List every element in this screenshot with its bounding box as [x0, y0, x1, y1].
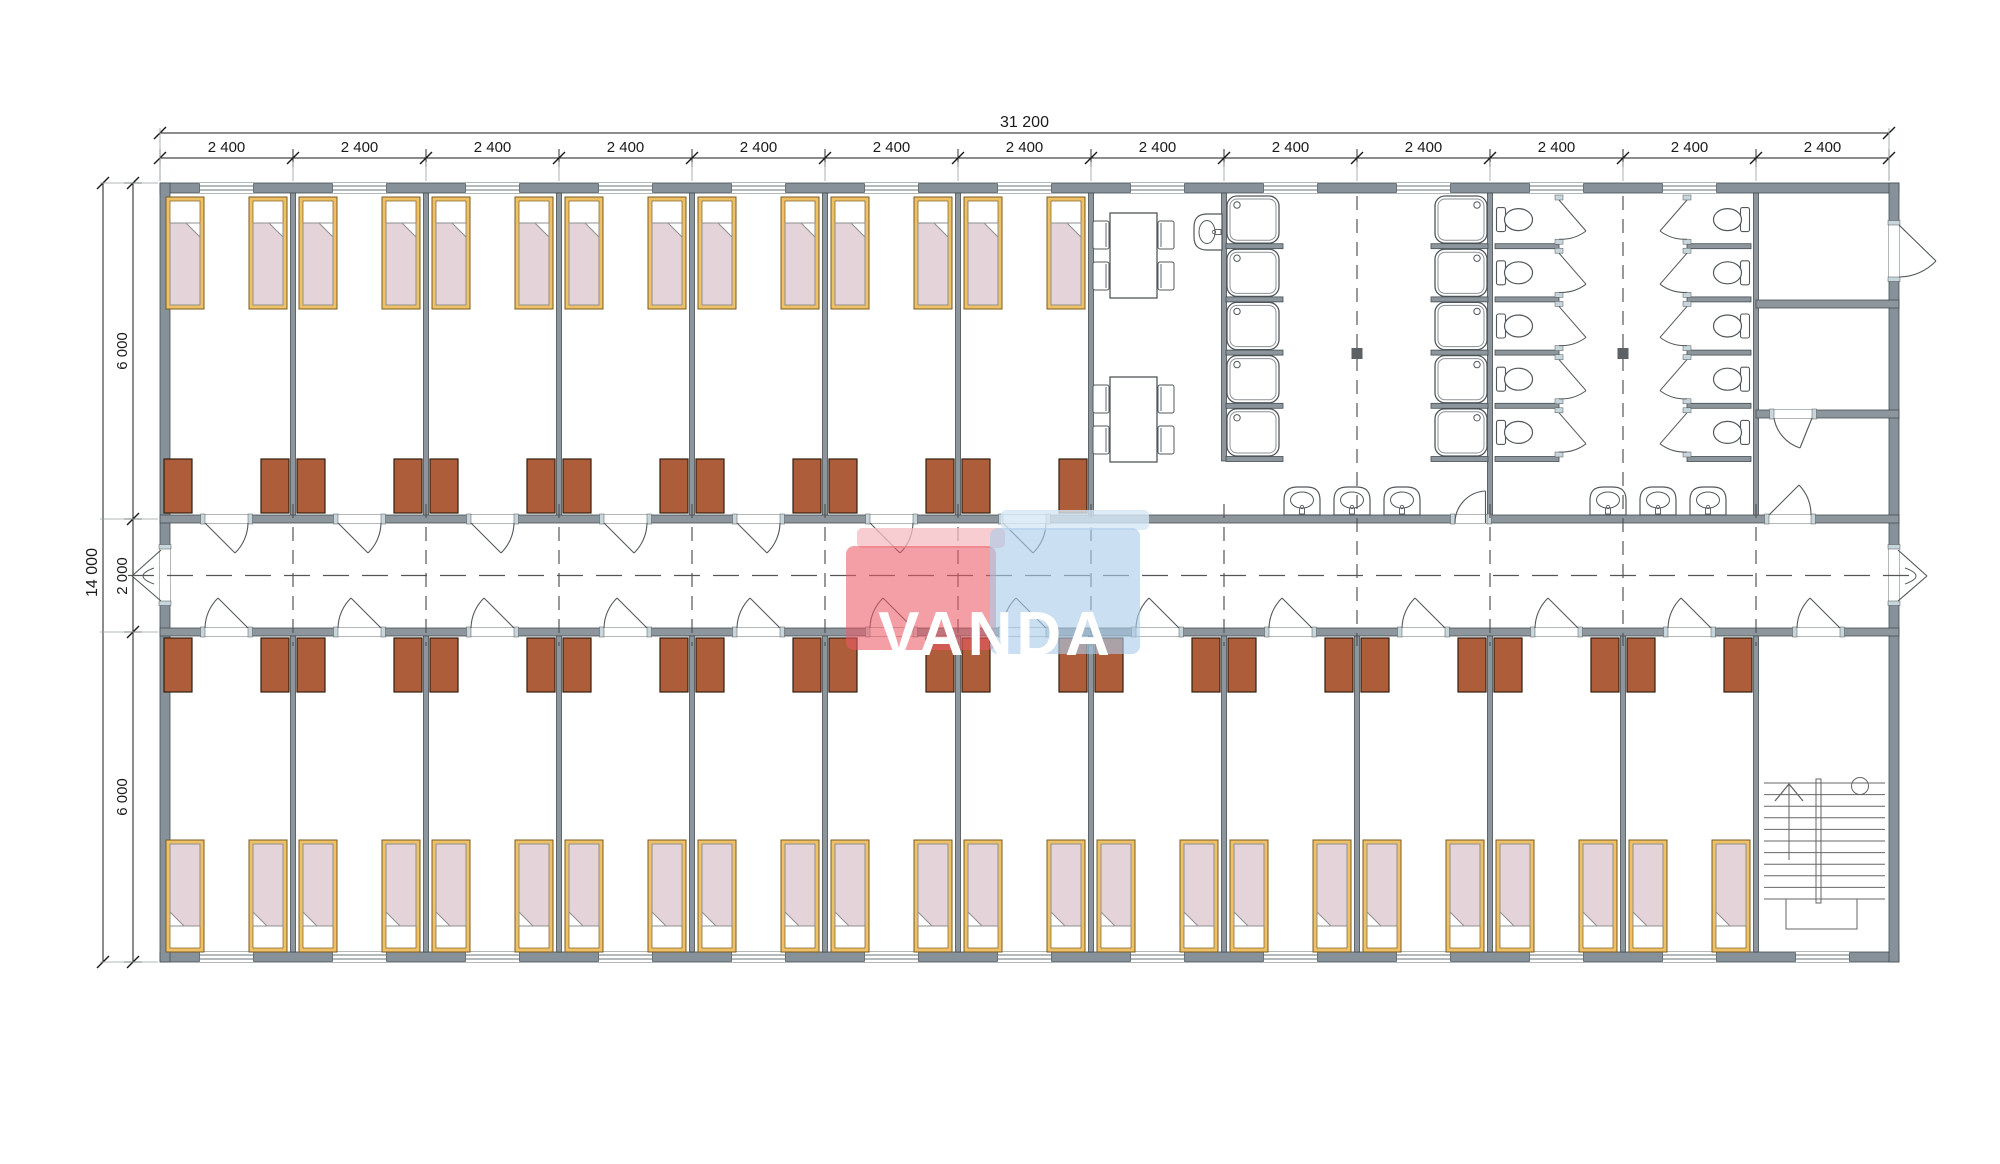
door-swing-icon — [600, 598, 652, 637]
door-arc — [1660, 391, 1687, 399]
dim-label-bay: 2 400 — [1006, 139, 1044, 156]
door-jamb — [600, 514, 605, 524]
partition-wall-bottom — [956, 636, 961, 952]
door-jamb — [1451, 514, 1456, 524]
door-jamb — [1683, 408, 1691, 413]
door-jamb — [1683, 195, 1691, 200]
bed-symbol — [1363, 840, 1401, 952]
door-jamb — [1664, 627, 1669, 637]
door-leaf — [617, 598, 647, 628]
wardrobe-symbol — [164, 638, 192, 692]
bedroom-bottom-5 — [696, 638, 821, 952]
partition-wall-bottom — [1488, 636, 1493, 952]
door-leaf — [484, 598, 514, 628]
wardrobe-symbol — [394, 638, 422, 692]
wardrobe-symbol — [1325, 638, 1353, 692]
wardrobe-symbol — [1494, 638, 1522, 692]
bedroom-bottom-9 — [1228, 638, 1353, 952]
door-leaf — [1899, 225, 1936, 261]
door-jamb — [514, 514, 519, 524]
door-arc — [1559, 337, 1586, 345]
door-arc — [737, 598, 750, 628]
bed-symbol — [1230, 840, 1268, 952]
shower-partition — [1431, 244, 1488, 249]
door-arc — [1774, 418, 1800, 448]
bed-symbol — [1712, 840, 1750, 952]
dim-label-bay: 2 400 — [607, 139, 645, 156]
door-leaf — [1149, 598, 1179, 628]
bedroom-bottom-10 — [1361, 638, 1486, 952]
door-swing-icon — [733, 514, 785, 553]
door-jamb — [1555, 399, 1563, 404]
bed-symbol — [648, 197, 686, 309]
dimensions-left: 14 0006 0002 0006 000 — [84, 177, 158, 968]
bed-symbol — [1047, 197, 1085, 309]
bed-symbol — [382, 840, 420, 952]
door-arc — [1660, 284, 1687, 292]
washroom-wall — [1754, 193, 1759, 515]
toilet-icon — [1714, 367, 1750, 391]
chair-icon — [1158, 385, 1174, 413]
door-arc — [1660, 337, 1687, 345]
door-jamb — [1555, 292, 1563, 297]
partition-wall-bottom — [424, 636, 429, 952]
door-leaf — [1415, 598, 1445, 628]
door-swing-icon — [201, 514, 253, 553]
door-jamb — [467, 514, 472, 524]
door-swing-icon — [1555, 355, 1586, 404]
window-icon — [732, 952, 786, 962]
bed-symbol — [1496, 840, 1534, 952]
shower-block-a — [1226, 196, 1283, 462]
door-arc — [1535, 598, 1548, 628]
window-icon — [1264, 183, 1318, 193]
door-leaf — [1800, 418, 1812, 448]
door-arc — [1559, 444, 1586, 452]
bedroom-top-7 — [962, 197, 1087, 513]
dim-label-left-seg: 6 000 — [114, 778, 131, 816]
wardrobe-symbol — [563, 459, 591, 513]
door-swing-icon — [600, 514, 652, 553]
door-jamb — [1555, 301, 1563, 306]
basin-icon — [1194, 214, 1222, 250]
dim-label-bay: 2 400 — [474, 139, 512, 156]
wardrobe-symbol — [1458, 638, 1486, 692]
door-jamb — [780, 627, 785, 637]
dim-label-bay: 2 400 — [1139, 139, 1177, 156]
shower-partition — [1226, 457, 1283, 462]
door-arc — [1402, 598, 1415, 628]
dim-label-bay: 2 400 — [341, 139, 379, 156]
door-jamb — [1555, 408, 1563, 413]
window-icon — [865, 952, 919, 962]
bedroom-top-3 — [430, 197, 555, 513]
dim-label-bay: 2 400 — [740, 139, 778, 156]
chair-icon — [1093, 262, 1109, 290]
door-jamb — [1683, 452, 1691, 457]
door-jamb — [248, 514, 253, 524]
door-jamb — [913, 514, 918, 524]
wardrobe-symbol — [430, 638, 458, 692]
dim-label-left-seg: 6 000 — [114, 332, 131, 370]
stall-partition — [1687, 457, 1751, 462]
stall-partition — [1687, 403, 1751, 408]
bed-symbol — [432, 840, 470, 952]
wardrobe-symbol — [696, 638, 724, 692]
door-jamb — [1683, 301, 1691, 306]
window-icon — [998, 183, 1052, 193]
partition-wall-bottom — [1621, 636, 1626, 952]
door-leaf — [1559, 413, 1586, 444]
door-jamb — [381, 514, 386, 524]
bed-symbol — [1097, 840, 1135, 952]
partition-wall-top — [823, 193, 828, 515]
door-jamb — [1812, 409, 1817, 419]
door-leaf — [471, 523, 501, 553]
bedroom-bottom-2 — [297, 638, 422, 952]
dim-label-bay: 2 400 — [873, 139, 911, 156]
partition-wall-bottom — [1754, 636, 1759, 952]
stall-partition — [1495, 297, 1559, 302]
bed-symbol — [565, 197, 603, 309]
door-arc — [1797, 598, 1810, 628]
door-jamb — [1840, 627, 1845, 637]
toilet-icon — [1714, 208, 1750, 232]
stall-partition — [1687, 350, 1751, 355]
room-wall — [1756, 300, 1899, 308]
bedroom-bottom-4 — [563, 638, 688, 952]
door-swing-icon — [1555, 301, 1586, 350]
shower-tray-icon — [1227, 249, 1279, 296]
window-icon — [200, 952, 254, 962]
basin-icon — [1690, 487, 1726, 515]
door-jamb — [1683, 239, 1691, 244]
stall-partition — [1687, 297, 1751, 302]
door-jamb — [1793, 627, 1798, 637]
window-icon — [1131, 952, 1185, 962]
bed-symbol — [166, 840, 204, 952]
shower-partition — [1226, 297, 1283, 302]
door-jamb — [201, 627, 206, 637]
shower-tray-icon — [1227, 302, 1279, 349]
door-jamb — [1555, 346, 1563, 351]
toilet-icon — [1714, 420, 1750, 444]
bedroom-top-4 — [563, 197, 688, 513]
partition-wall-top — [690, 193, 695, 515]
shower-tray-icon — [1227, 196, 1279, 243]
toilet-icon — [1714, 314, 1750, 338]
wardrobe-symbol — [793, 459, 821, 513]
wardrobe-symbol — [297, 638, 325, 692]
dim-label-bay: 2 400 — [208, 139, 246, 156]
bed-symbol — [1629, 840, 1667, 952]
bed-symbol — [831, 197, 869, 309]
bed-symbol — [698, 840, 736, 952]
window-icon — [1663, 952, 1717, 962]
stall-partition — [1495, 403, 1559, 408]
column-marker — [1618, 348, 1629, 359]
toilet-icon — [1714, 261, 1750, 285]
door-leaf — [1559, 360, 1586, 391]
bed-symbol — [1313, 840, 1351, 952]
door-jamb — [1888, 221, 1900, 226]
door-swing-icon — [1660, 195, 1691, 244]
bedroom-bottom-7 — [962, 638, 1087, 952]
door-jamb — [1765, 514, 1770, 524]
door-leaf — [750, 598, 780, 628]
wardrobe-symbol — [1361, 638, 1389, 692]
window-icon — [865, 183, 919, 193]
door-jamb — [1555, 239, 1563, 244]
partition-wall-bottom — [291, 636, 296, 952]
door-arc — [1559, 284, 1586, 292]
wardrobe-symbol — [1627, 638, 1655, 692]
door-arc — [1899, 261, 1936, 277]
door-arc — [767, 523, 780, 553]
partition-wall-top — [424, 193, 429, 515]
door-swing-icon — [1555, 248, 1586, 297]
toilet-icon — [1497, 208, 1533, 232]
window-icon — [1530, 183, 1584, 193]
wardrobe-symbol — [261, 638, 289, 692]
wardrobe-symbol — [297, 459, 325, 513]
door-swing-icon — [201, 598, 253, 637]
bed-symbol — [964, 840, 1002, 952]
door-swing-icon — [1770, 409, 1817, 448]
door-leaf — [132, 550, 161, 576]
door-jamb — [1683, 292, 1691, 297]
door-jamb — [600, 627, 605, 637]
door-jamb — [159, 601, 171, 606]
shower-tray-icon — [1435, 249, 1487, 296]
door-leaf — [737, 523, 767, 553]
toilet-icon — [1497, 314, 1533, 338]
shower-tray-icon — [1435, 196, 1487, 243]
door-swing-icon — [1660, 248, 1691, 297]
chair-icon — [1158, 221, 1174, 249]
wardrobe-symbol — [394, 459, 422, 513]
floor-plan-page: 31 2002 4002 4002 4002 4002 4002 4002 40… — [0, 0, 2000, 1164]
toilet-icon — [1497, 420, 1533, 444]
stall-partition — [1687, 244, 1751, 249]
door-leaf — [1681, 598, 1711, 628]
table-icon — [1110, 377, 1157, 462]
toilet-block-b — [1660, 195, 1751, 462]
toilet-icon — [1497, 367, 1533, 391]
wardrobe-symbol — [527, 638, 555, 692]
wardrobe-symbol — [1724, 638, 1752, 692]
door-leaf — [1660, 413, 1687, 444]
door-swing-icon — [1265, 598, 1317, 637]
door-jamb — [467, 627, 472, 637]
wardrobe-symbol — [261, 459, 289, 513]
bed-symbol — [1446, 840, 1484, 952]
basin-icon — [1284, 487, 1320, 515]
dim-label-total: 31 200 — [1000, 114, 1049, 131]
shower-partition — [1226, 403, 1283, 408]
door-arc — [604, 598, 617, 628]
door-leaf — [604, 523, 634, 553]
shower-tray-icon — [1435, 356, 1487, 403]
logo-blue-top — [1001, 510, 1149, 530]
door-arc — [1799, 485, 1811, 515]
wardrobe-symbol — [926, 459, 954, 513]
wardrobe-symbol — [164, 459, 192, 513]
bedroom-bottom-11 — [1494, 638, 1619, 952]
bed-symbol — [1047, 840, 1085, 952]
wardrobe-symbol — [660, 638, 688, 692]
chair-icon — [1093, 385, 1109, 413]
bed-symbol — [432, 197, 470, 309]
door-leaf — [1548, 598, 1578, 628]
door-arc — [338, 598, 351, 628]
door-jamb — [1683, 399, 1691, 404]
dim-label-bay: 2 400 — [1804, 139, 1842, 156]
table-icon — [1110, 213, 1157, 298]
exterior-door-icon — [1888, 221, 1936, 282]
window-icon — [333, 183, 387, 193]
door-jamb — [866, 514, 871, 524]
window-icon — [1796, 952, 1850, 962]
door-swing-icon — [334, 514, 386, 553]
wardrobe-symbol — [430, 459, 458, 513]
door-leaf — [1898, 576, 1927, 601]
door-swing-icon — [467, 598, 519, 637]
door-arc — [634, 523, 647, 553]
wardrobe-symbol — [527, 459, 555, 513]
dimensions-top: 31 2002 4002 4002 4002 4002 4002 4002 40… — [154, 114, 1895, 181]
door-jamb — [514, 627, 519, 637]
stall-partition — [1495, 350, 1559, 355]
partition-wall-bottom — [1355, 636, 1360, 952]
dim-label-bay: 2 400 — [1671, 139, 1709, 156]
door-arc — [1559, 391, 1586, 399]
bedroom-bottom-1 — [164, 638, 289, 952]
bedroom-top-6 — [829, 197, 954, 513]
shower-block-b — [1431, 196, 1488, 462]
bed-symbol — [648, 840, 686, 952]
stair-marker — [1852, 778, 1869, 795]
door-jamb — [334, 514, 339, 524]
bed-symbol — [964, 197, 1002, 309]
door-jamb — [1555, 452, 1563, 457]
door-jamb — [1770, 409, 1775, 419]
wardrobe-symbol — [696, 459, 724, 513]
partition-wall-top — [956, 193, 961, 515]
door-jamb — [381, 627, 386, 637]
door-jamb — [780, 514, 785, 524]
door-arc — [501, 523, 514, 553]
wardrobe-symbol — [793, 638, 821, 692]
window-icon — [998, 952, 1052, 962]
shower-partition — [1226, 244, 1283, 249]
window-icon — [1663, 183, 1717, 193]
stall-partition — [1495, 457, 1559, 462]
column-marker — [1352, 348, 1363, 359]
wardrobe-symbol — [829, 459, 857, 513]
door-jamb — [1555, 355, 1563, 360]
door-swing-icon — [1398, 598, 1450, 637]
bed-symbol — [166, 197, 204, 309]
partition-wall-top — [291, 193, 296, 515]
partition-wall-bottom — [1222, 636, 1227, 952]
door-leaf — [1769, 485, 1799, 515]
door-jamb — [1445, 627, 1450, 637]
window-icon — [1397, 183, 1451, 193]
door-leaf — [338, 523, 368, 553]
door-leaf — [351, 598, 381, 628]
window-icon — [1131, 183, 1185, 193]
door-swing-icon — [1451, 491, 1492, 524]
door-jamb — [647, 514, 652, 524]
door-arc — [1660, 231, 1687, 239]
door-jamb — [1711, 627, 1716, 637]
bedroom-top-2 — [297, 197, 422, 513]
shower-partition — [1431, 297, 1488, 302]
door-jamb — [1683, 346, 1691, 351]
bedroom-bottom-3 — [430, 638, 555, 952]
bed-symbol — [565, 840, 603, 952]
door-swing-icon — [1765, 485, 1816, 524]
bed-symbol — [1180, 840, 1218, 952]
door-jamb — [1487, 514, 1492, 524]
door-jamb — [1888, 277, 1900, 282]
window-icon — [333, 952, 387, 962]
door-arc — [1269, 598, 1282, 628]
bed-symbol — [249, 840, 287, 952]
bedroom-bottom-8 — [1095, 638, 1220, 952]
door-leaf — [1810, 598, 1840, 628]
window-icon — [1530, 952, 1584, 962]
shower-partition — [1431, 403, 1488, 408]
wardrobe-symbol — [1228, 638, 1256, 692]
window-icon — [466, 183, 520, 193]
toilet-block-a — [1495, 195, 1586, 462]
door-jamb — [1531, 627, 1536, 637]
door-jamb — [159, 545, 171, 550]
bed-symbol — [914, 840, 952, 952]
wardrobe-symbol — [563, 638, 591, 692]
door-swing-icon — [1660, 408, 1691, 457]
logo-text: VANDA — [878, 600, 1114, 669]
dim-label-bay: 2 400 — [1405, 139, 1443, 156]
door-jamb — [1888, 545, 1900, 550]
window-icon — [200, 183, 254, 193]
basin-icon — [1384, 487, 1420, 515]
partition-wall-bottom — [823, 636, 828, 952]
door-swing-icon — [1555, 408, 1586, 457]
door-leaf — [1282, 598, 1312, 628]
door-jamb — [1888, 601, 1900, 606]
window-icon — [599, 952, 653, 962]
door-swing-icon — [1660, 301, 1691, 350]
stairwell — [1764, 778, 1885, 930]
door-swing-icon — [334, 598, 386, 637]
floor-plan-canvas: 31 2002 4002 4002 4002 4002 4002 4002 40… — [0, 0, 2000, 1164]
dim-label-bay: 2 400 — [1272, 139, 1310, 156]
bedroom-top-5 — [696, 197, 821, 513]
shower-tray-icon — [1227, 356, 1279, 403]
window-icon — [1397, 952, 1451, 962]
basin-icon — [1590, 487, 1626, 515]
door-jamb — [1312, 627, 1317, 637]
door-leaf — [1660, 253, 1687, 284]
door-jamb — [201, 514, 206, 524]
door-swing-icon — [1793, 598, 1845, 637]
shower-partition — [1431, 350, 1488, 355]
window-icon — [1264, 952, 1318, 962]
door-jamb — [1683, 355, 1691, 360]
